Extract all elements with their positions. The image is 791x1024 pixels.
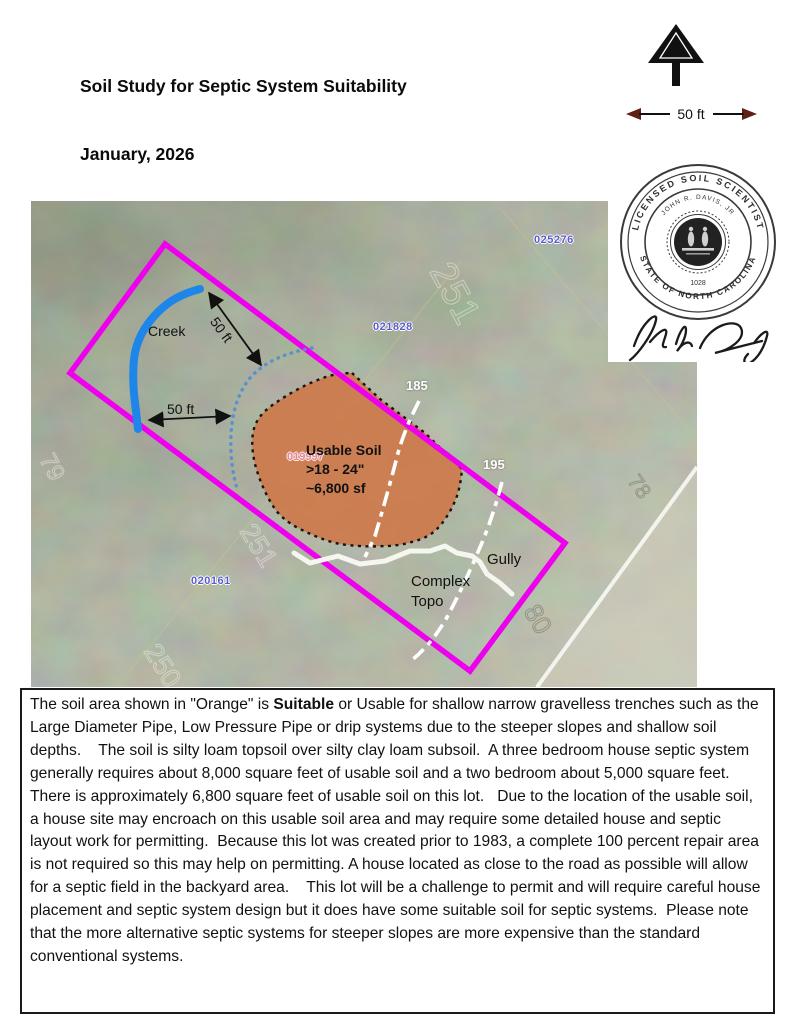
contour-185-label: 185 [406, 378, 428, 393]
creek-label: Creek [148, 323, 185, 339]
parcel-id-label: 025276 [534, 234, 574, 246]
seal-text-name: JOHN R. DAVIS, JR [660, 194, 735, 217]
svg-text:JOHN R. DAVIS, JR: JOHN R. DAVIS, JR [660, 194, 735, 217]
seal-number: 1028 [690, 280, 706, 287]
report-text-box: The soil area shown in "Orange" is Suita… [20, 688, 775, 1014]
contour-195-label: 195 [483, 457, 505, 472]
gully-label: Gully [487, 551, 521, 568]
north-arrow-icon [648, 24, 704, 86]
complex-topo-label-line1: Complex [411, 573, 470, 590]
usable-soil-title: Usable Soil [306, 441, 381, 460]
scale-bar: 50 ft [626, 106, 757, 122]
north-scale-group: 50 ft [600, 18, 780, 138]
parcel-id-label: 020161 [191, 575, 231, 587]
report-text-part2: or Usable for shallow narrow gravelless … [30, 696, 765, 965]
report-text-bold: Suitable [273, 696, 334, 713]
scale-bar-label: 50 ft [677, 106, 704, 122]
report-text-part1: The soil area shown in "Orange" is [30, 696, 273, 713]
aerial-map: 79 251 251 250 78 80 [31, 201, 697, 687]
seal-emblem [674, 218, 722, 266]
seal-graphic: LICENSED SOIL SCIENTIST JOHN R. DAVIS, J… [608, 152, 789, 362]
parcel-id-label: 021828 [373, 321, 413, 333]
document-page: Soil Study for Septic System Suitability… [0, 0, 791, 1024]
report-title: Soil Study for Septic System Suitability [80, 75, 407, 98]
signature [630, 316, 767, 362]
report-date: January, 2026 [80, 143, 407, 166]
usable-soil-depth: >18 - 24" [306, 460, 381, 479]
complex-topo-label-line2: Topo [411, 593, 444, 610]
usable-soil-area: ~6,800 sf [306, 479, 381, 498]
setback-50ft-horizontal-label: 50 ft [167, 401, 194, 417]
usable-soil-label: Usable Soil >18 - 24" ~6,800 sf [306, 441, 381, 498]
seal-and-signature-box: LICENSED SOIL SCIENTIST JOHN R. DAVIS, J… [608, 152, 789, 362]
